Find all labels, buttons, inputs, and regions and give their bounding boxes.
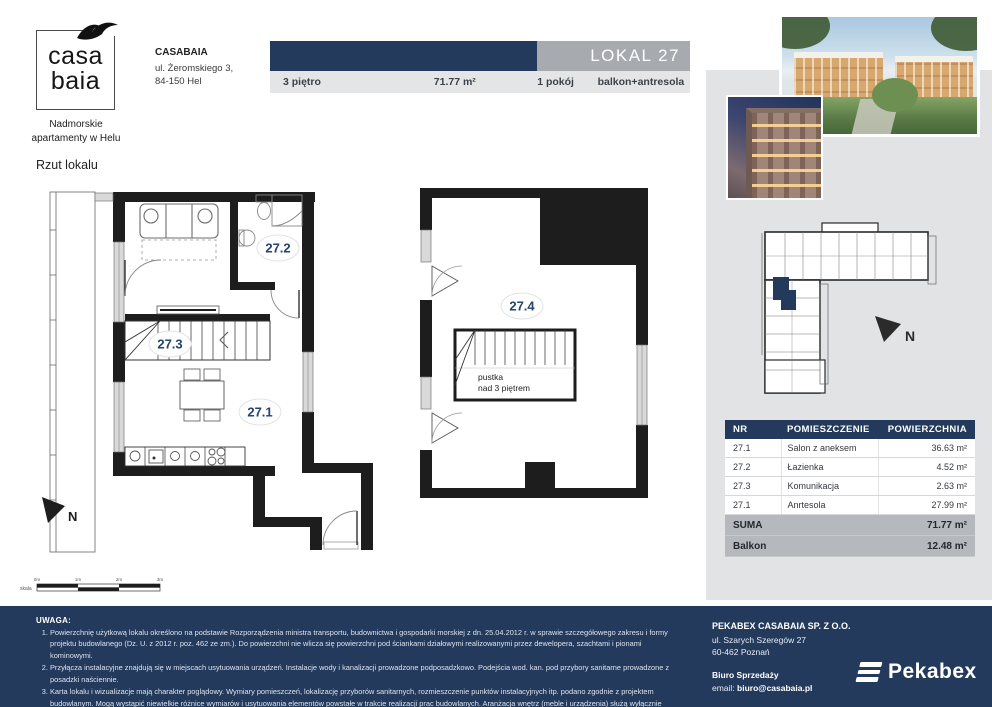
- site-north-label: N: [905, 328, 915, 344]
- room-area: 27.99 m²: [879, 496, 975, 515]
- room-nr: 27.1: [725, 439, 781, 458]
- tagline-line1: Nadmorskie: [12, 118, 140, 132]
- plan-section-title: Rzut lokalu: [36, 158, 98, 172]
- note-item-3: Karta lokalu i wizualizacje mają charakt…: [50, 686, 676, 707]
- table-row: 27.3 Komunikacja 2.63 m²: [725, 477, 975, 496]
- scale-bar: skala 0m 1m 2m 3m: [20, 577, 163, 592]
- sales-office-label: Biuro Sprzedaży: [712, 669, 851, 682]
- scale-tick-3: 3m: [157, 577, 164, 582]
- developer-address-line2: 60-462 Poznań: [712, 646, 851, 659]
- unit-title: LOKAL 27: [537, 41, 690, 71]
- room-nr: 27.3: [725, 477, 781, 496]
- north-arrow-icon: N: [42, 497, 77, 524]
- stairs-upper: pustka nad 3 piętrem: [455, 330, 575, 400]
- rug-outline: [142, 240, 216, 260]
- summary-row-suma: SUMA 71.77 m²: [725, 515, 975, 536]
- room-nr: 27.1: [725, 496, 781, 515]
- footer: UWAGA: Powierzchnię użytkową lokalu okre…: [0, 606, 992, 707]
- floorplan-drawing: N p: [0, 180, 700, 605]
- room-area: 36.63 m²: [879, 439, 975, 458]
- suma-label: SUMA: [725, 515, 879, 536]
- balcony-outline: [50, 192, 95, 552]
- room-label-27-4: 27.4: [501, 293, 543, 319]
- balkon-value: 12.48 m²: [879, 536, 975, 557]
- company-address-line1: ul. Żeromskiego 3,: [155, 62, 233, 75]
- header-navy-bar: [270, 41, 537, 71]
- developer-address-block: CASABAIA ul. Żeromskiego 3, 84-150 Hel: [155, 46, 233, 89]
- room-name: Salon z aneksem: [781, 439, 879, 458]
- room-label-27-1: 27.1: [239, 399, 281, 425]
- rooms-table: NR POMIESZCZENIE POWIERZCHNIA 27.1 Salon…: [725, 420, 975, 557]
- entry-door: [323, 511, 358, 549]
- room-label-27-3: 27.3: [149, 331, 191, 357]
- summary-row-balkon: Balkon 12.48 m²: [725, 536, 975, 557]
- developer-address-line1: ul. Szarych Szeregów 27: [712, 634, 851, 647]
- unit-floor: 3 piętro: [270, 76, 396, 88]
- stairs-lower: [125, 321, 270, 360]
- scale-label: skala: [20, 586, 32, 592]
- building-site-plan: N: [745, 220, 955, 410]
- building-facade-dusk: [746, 108, 823, 200]
- unit-rooms: 1 pokój: [514, 76, 598, 88]
- pekabex-logo: Pekabex: [858, 660, 977, 684]
- pekabex-logo-icon: [856, 662, 883, 682]
- scale-tick-0: 0m: [34, 577, 41, 582]
- room-area: 2.63 m²: [879, 477, 975, 496]
- seagull-icon: [76, 18, 130, 44]
- table-row: 27.1 Anrtesola 27.99 m²: [725, 496, 975, 515]
- tree-foliage-right: [931, 14, 980, 51]
- unit-summary-strip: 3 piętro 71.77 m² 1 pokój balkon+antreso…: [270, 71, 690, 93]
- apartment-card-page: casa baia Nadmorskie apartamenty w Helu …: [0, 0, 992, 707]
- svg-text:27.3: 27.3: [157, 337, 182, 352]
- void-note-line2: nad 3 piętrem: [478, 383, 530, 393]
- notes-title: UWAGA:: [36, 616, 676, 625]
- sales-email-line: email: biuro@casabaia.pl: [712, 682, 851, 695]
- col-header-nr: NR: [725, 420, 781, 439]
- dining-set: [180, 369, 224, 421]
- company-address-line2: 84-150 Hel: [155, 75, 233, 88]
- svg-text:27.4: 27.4: [509, 299, 535, 314]
- room-area: 4.52 m²: [879, 458, 975, 477]
- table-row: 27.1 Salon z aneksem 36.63 m²: [725, 439, 975, 458]
- col-header-area: POWIERZCHNIA: [879, 420, 975, 439]
- pekabex-wordmark: Pekabex: [888, 660, 977, 684]
- sofa: [140, 204, 218, 238]
- rendering-photo-dusk: [726, 95, 823, 200]
- svg-text:27.2: 27.2: [265, 241, 290, 256]
- room-label-27-2: 27.2: [257, 235, 299, 261]
- legal-notes: UWAGA: Powierzchnię użytkową lokalu okre…: [36, 616, 676, 707]
- scale-tick-1: 1m: [75, 577, 82, 582]
- shrub: [872, 78, 918, 112]
- room-name: Anrtesola: [781, 496, 879, 515]
- site-north-arrow-icon: N: [875, 316, 915, 344]
- unit-extras: balkon+antresola: [598, 76, 690, 88]
- tree-foliage-left: [779, 14, 830, 49]
- email-prefix: email:: [712, 683, 737, 693]
- developer-contact-block: PEKABEX CASABAIA SP. Z O.O. ul. Szarych …: [712, 620, 851, 695]
- north-label: N: [68, 509, 77, 524]
- tagline-line2: apartamenty w Helu: [12, 132, 140, 146]
- company-name: CASABAIA: [155, 46, 233, 60]
- col-header-name: POMIESZCZENIE: [781, 420, 879, 439]
- note-item-1: Powierzchnię użytkową lokalu określono n…: [50, 627, 676, 661]
- logo-word-casa: casa: [37, 44, 114, 69]
- void-note-line1: pustka: [478, 372, 503, 382]
- table-row: 27.2 Łazienka 4.52 m²: [725, 458, 975, 477]
- room-name: Łazienka: [781, 458, 879, 477]
- logo-word-baia: baia: [37, 69, 114, 94]
- developer-name: PEKABEX CASABAIA SP. Z O.O.: [712, 620, 851, 634]
- svg-text:27.1: 27.1: [247, 405, 272, 420]
- suma-value: 71.77 m²: [879, 515, 975, 536]
- balkon-label: Balkon: [725, 536, 879, 557]
- room-nr: 27.2: [725, 458, 781, 477]
- unit-area: 71.77 m²: [396, 76, 514, 88]
- scale-tick-2: 2m: [116, 577, 123, 582]
- room-name: Komunikacja: [781, 477, 879, 496]
- logo-tagline: Nadmorskie apartamenty w Helu: [12, 118, 140, 145]
- email-link[interactable]: biuro@casabaia.pl: [737, 683, 812, 693]
- note-item-2: Przyłącza instalacyjne znajdują się w mi…: [50, 662, 676, 685]
- kitchen-counter: [125, 447, 245, 466]
- rooms-table-header-row: NR POMIESZCZENIE POWIERZCHNIA: [725, 420, 975, 439]
